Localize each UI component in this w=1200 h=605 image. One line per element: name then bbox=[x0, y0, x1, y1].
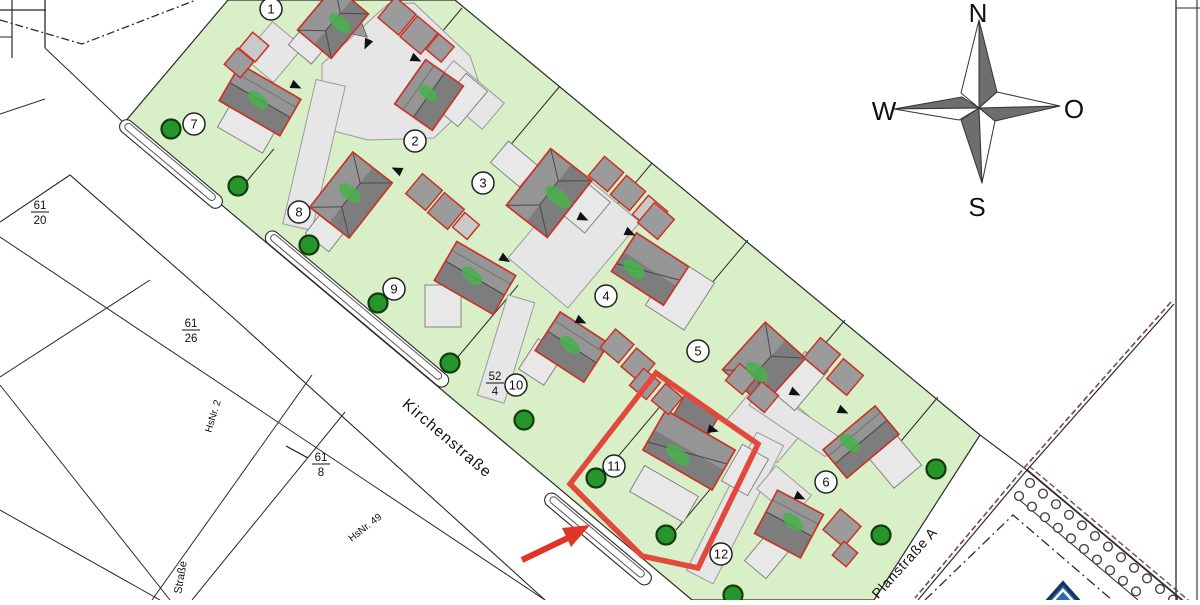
svg-text:9: 9 bbox=[390, 282, 397, 297]
svg-text:12: 12 bbox=[714, 547, 728, 562]
svg-text:52: 52 bbox=[489, 371, 502, 383]
svg-text:61: 61 bbox=[185, 318, 198, 330]
svg-text:11: 11 bbox=[607, 459, 621, 474]
svg-text:26: 26 bbox=[185, 333, 198, 345]
svg-text:W: W bbox=[872, 96, 897, 126]
svg-text:O: O bbox=[1064, 94, 1084, 124]
svg-text:10: 10 bbox=[509, 378, 523, 393]
svg-text:N: N bbox=[969, 0, 988, 28]
svg-text:2: 2 bbox=[411, 134, 418, 149]
svg-text:3: 3 bbox=[479, 176, 486, 191]
svg-text:4: 4 bbox=[602, 289, 609, 304]
svg-text:6: 6 bbox=[822, 475, 829, 490]
svg-text:4: 4 bbox=[492, 386, 499, 398]
svg-text:8: 8 bbox=[295, 205, 302, 220]
svg-text:1: 1 bbox=[267, 2, 274, 17]
svg-text:20: 20 bbox=[34, 215, 47, 227]
svg-text:S: S bbox=[968, 192, 985, 222]
svg-text:5: 5 bbox=[694, 344, 701, 359]
svg-text:8: 8 bbox=[318, 467, 324, 479]
svg-text:61: 61 bbox=[315, 452, 328, 464]
svg-text:7: 7 bbox=[190, 117, 197, 132]
svg-text:61: 61 bbox=[34, 200, 47, 212]
